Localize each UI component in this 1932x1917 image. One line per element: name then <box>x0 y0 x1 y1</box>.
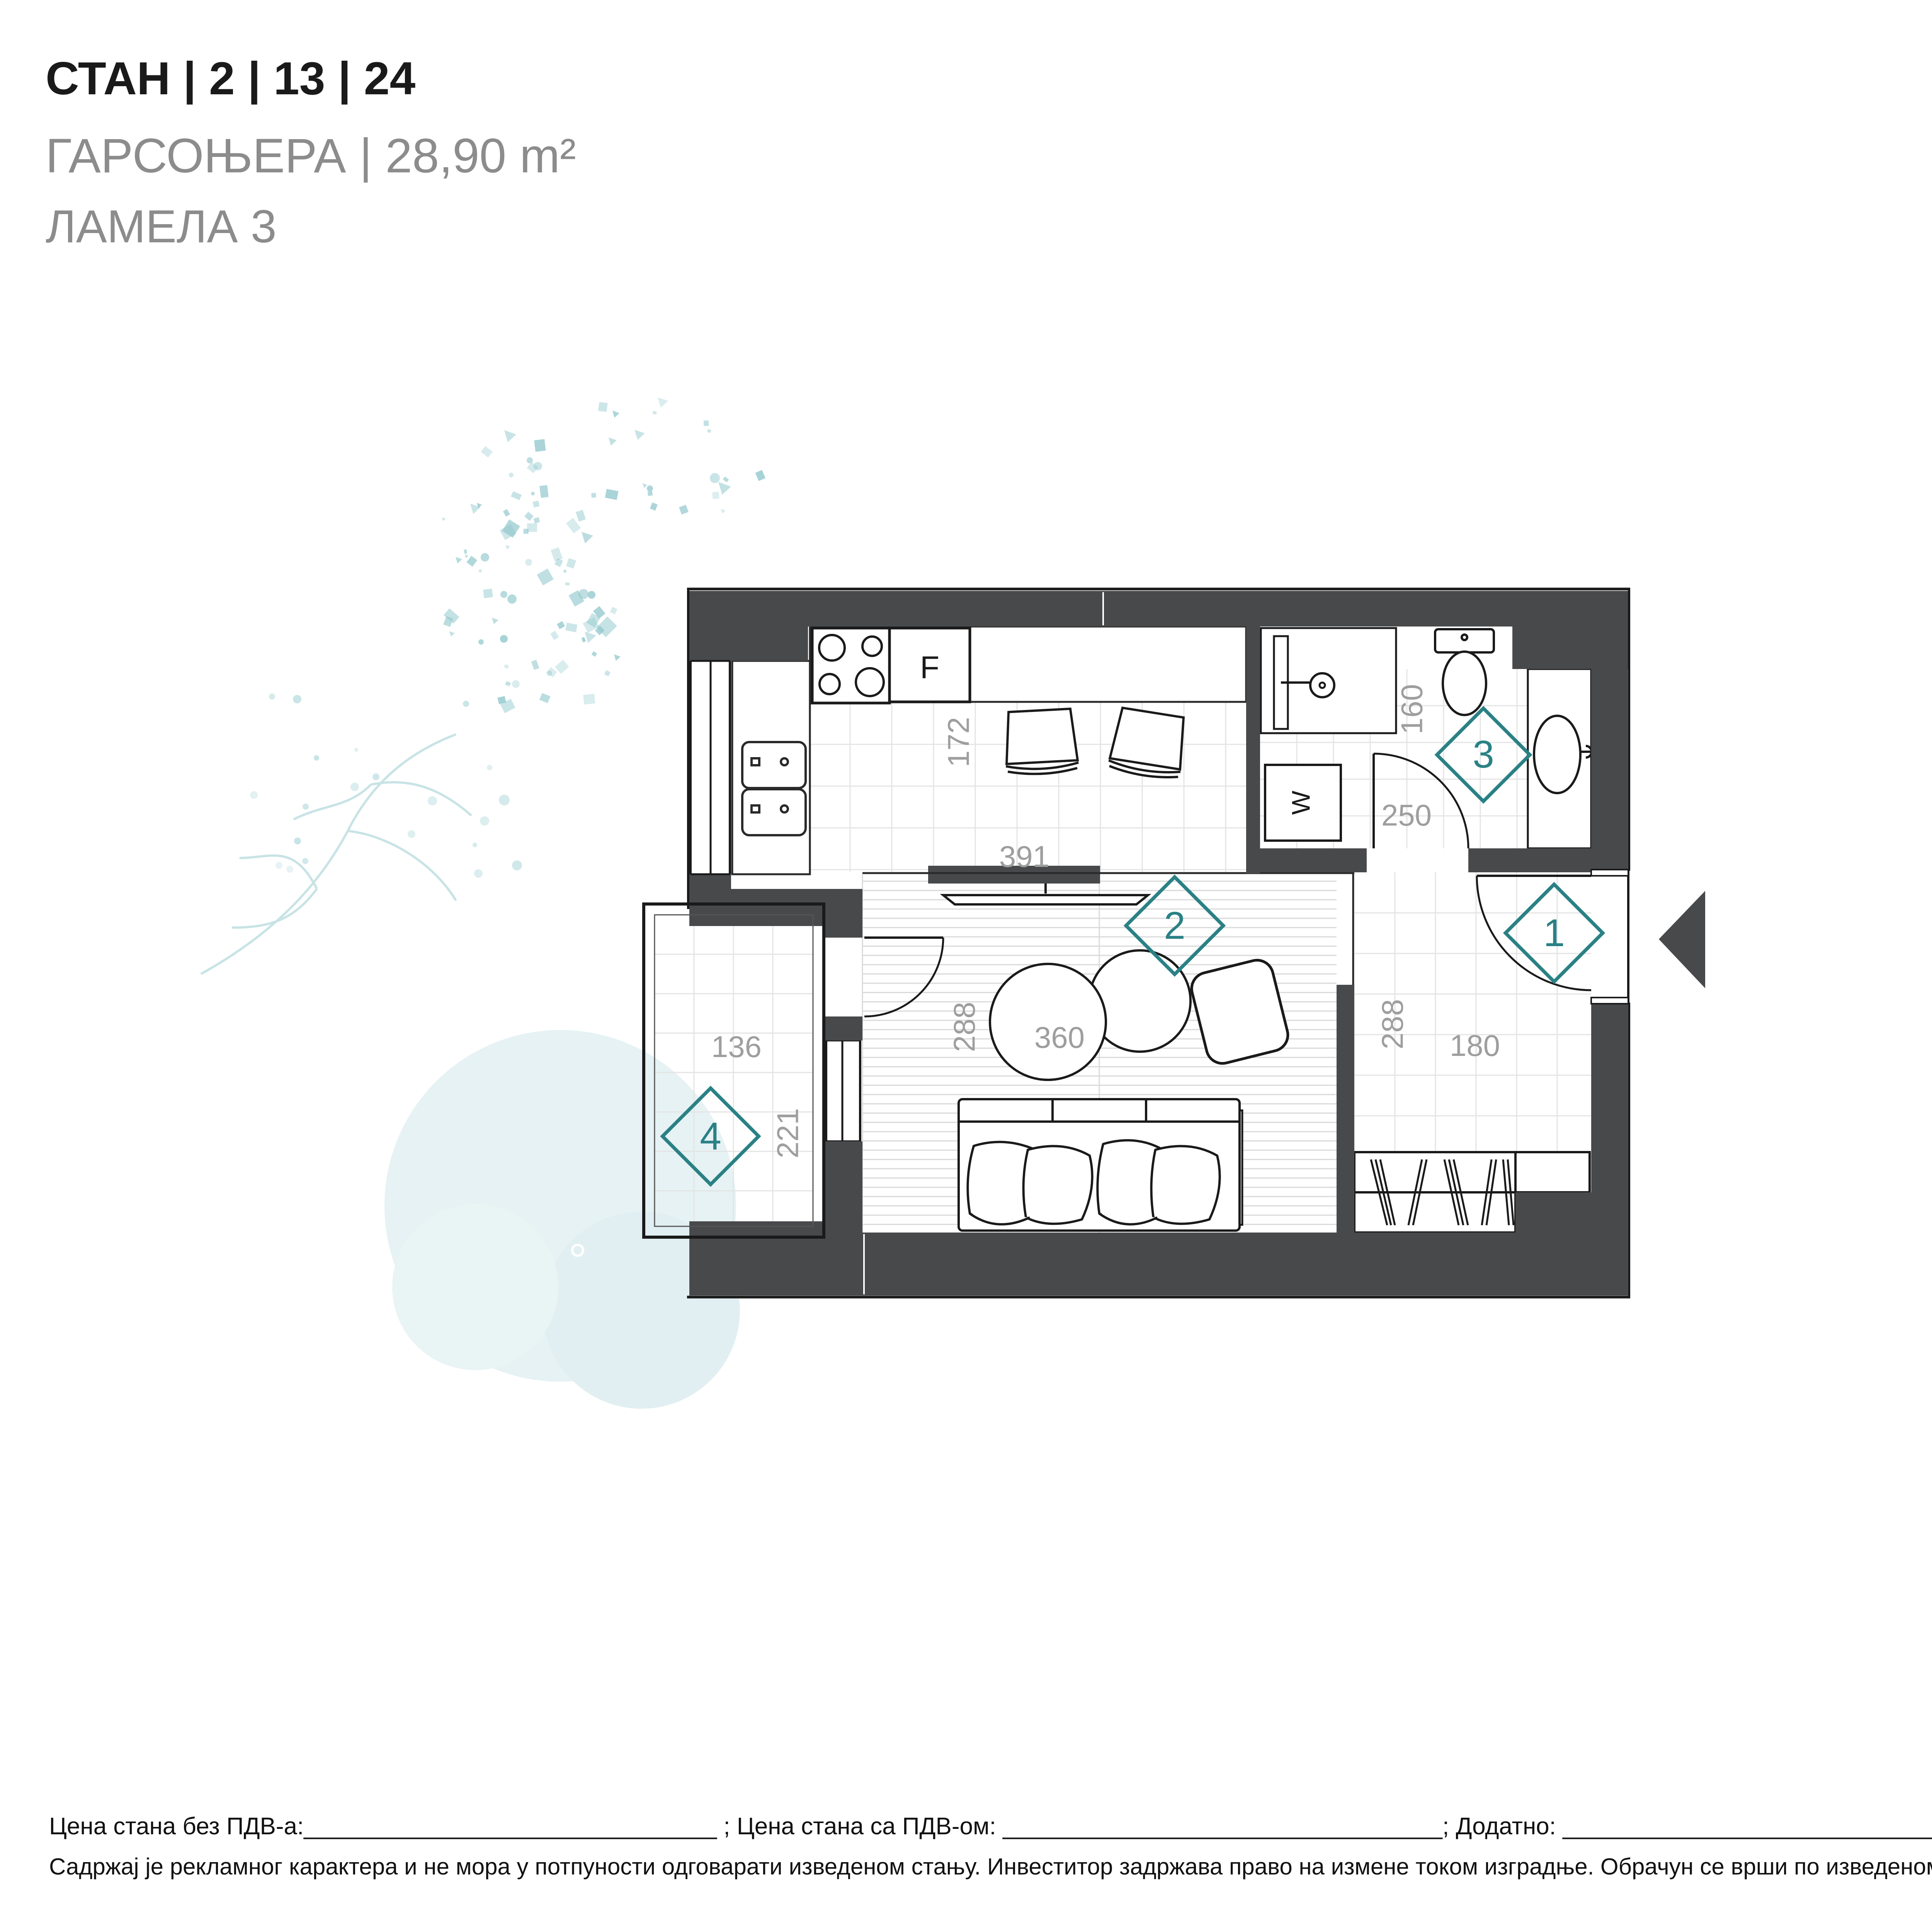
svg-text:136: 136 <box>711 1030 762 1064</box>
svg-text:360: 360 <box>1034 1020 1085 1054</box>
svg-text:221: 221 <box>771 1108 805 1158</box>
svg-text:391: 391 <box>999 839 1049 873</box>
svg-text:2: 2 <box>1164 904 1185 947</box>
svg-text:180: 180 <box>1450 1028 1500 1062</box>
svg-text:Цена стана без ПДВ-а:_________: Цена стана без ПДВ-а:___________________… <box>49 1813 1932 1840</box>
svg-text:1: 1 <box>1543 911 1565 955</box>
svg-text:3: 3 <box>1473 733 1494 776</box>
svg-text:4: 4 <box>700 1115 721 1158</box>
svg-text:СТАН | 2 | 13 | 24: СТАН | 2 | 13 | 24 <box>46 53 415 105</box>
svg-text:ЛАМЕЛА 3: ЛАМЕЛА 3 <box>46 201 277 252</box>
svg-text:288: 288 <box>947 1002 981 1052</box>
svg-text:288: 288 <box>1376 999 1410 1049</box>
svg-text:W: W <box>1286 790 1315 815</box>
svg-text:172: 172 <box>942 717 976 767</box>
svg-text:ГАРСОЊЕРА | 28,90 m²: ГАРСОЊЕРА | 28,90 m² <box>46 129 576 183</box>
svg-text:Садржај је рекламног карактера: Садржај је рекламног карактера и не мора… <box>49 1854 1932 1880</box>
svg-text:F: F <box>920 650 939 685</box>
svg-text:160: 160 <box>1395 684 1429 734</box>
svg-text:250: 250 <box>1381 798 1432 832</box>
